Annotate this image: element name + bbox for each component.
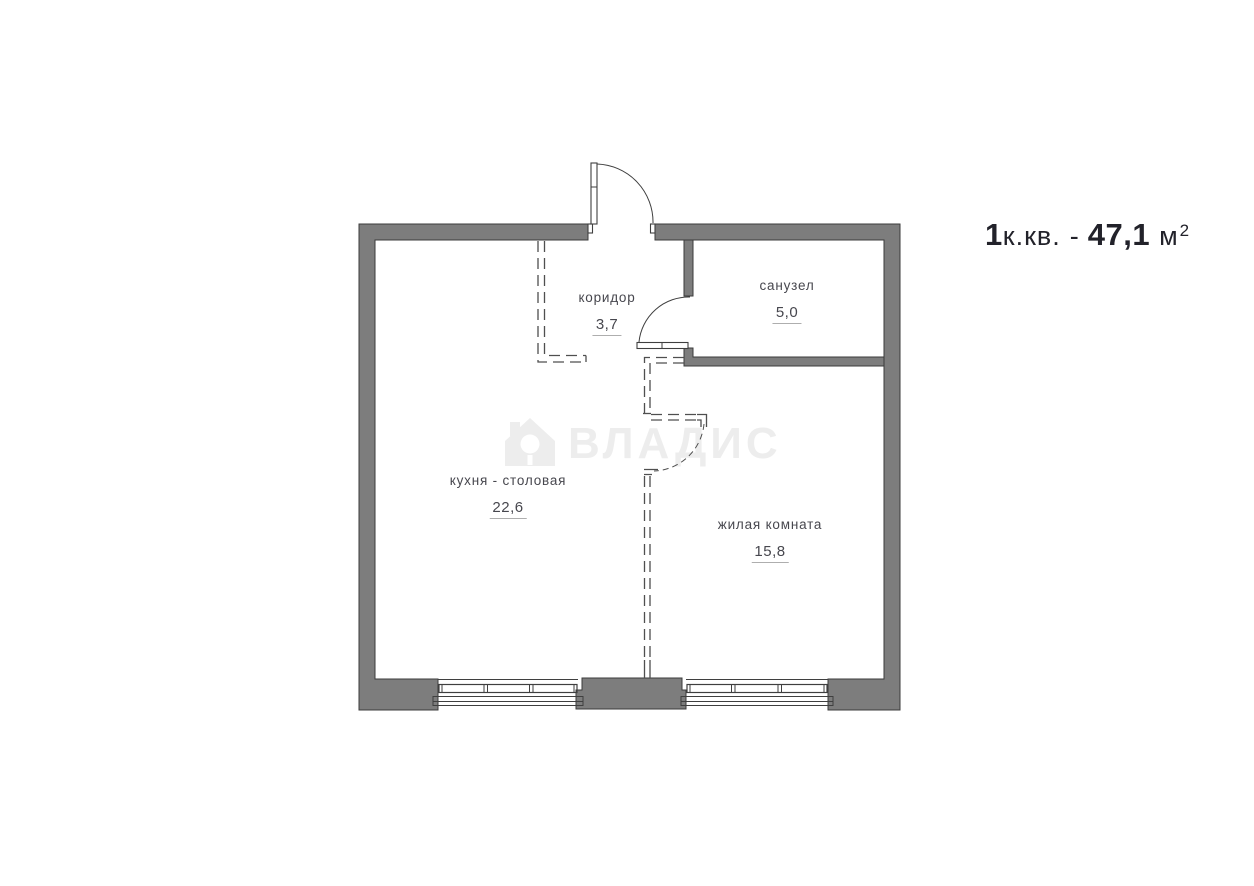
entrance-door-swing-arc bbox=[597, 164, 653, 223]
room-area: 5,0 bbox=[773, 304, 801, 324]
area-value: 47,1 bbox=[1088, 217, 1150, 252]
room-label-corridor: коридор 3,7 bbox=[578, 290, 635, 336]
living-room-door-swing-arc bbox=[654, 424, 704, 471]
living-room-partition bbox=[643, 358, 707, 679]
room-name: кухня - столовая bbox=[450, 473, 567, 488]
title-dash: - bbox=[1070, 221, 1079, 251]
room-area: 22,6 bbox=[489, 499, 526, 519]
area-unit-exponent: 2 bbox=[1180, 221, 1189, 240]
bathroom-wall-left bbox=[684, 240, 693, 296]
bathroom-wall-bottom bbox=[684, 348, 884, 366]
rooms-count: 1 bbox=[985, 217, 1003, 252]
living-room-window bbox=[681, 680, 833, 706]
apartment-type: к.кв. bbox=[1003, 221, 1061, 251]
room-name: санузел bbox=[759, 278, 814, 293]
room-label-bathroom: санузел 5,0 bbox=[759, 278, 814, 324]
room-label-kitchen: кухня - столовая 22,6 bbox=[450, 473, 567, 519]
room-label-living: жилая комната 15,8 bbox=[718, 517, 822, 563]
wall-bottom-pillar bbox=[576, 678, 686, 709]
room-name: жилая комната bbox=[718, 517, 822, 532]
floorplan-canvas: ВЛАДИС bbox=[0, 0, 1254, 886]
room-name: коридор bbox=[578, 290, 635, 305]
wall-left-top bbox=[359, 224, 588, 710]
area-unit: м bbox=[1159, 221, 1179, 251]
bathroom-door bbox=[637, 297, 690, 349]
room-area: 15,8 bbox=[751, 543, 788, 563]
entrance-door-leaf bbox=[591, 163, 597, 224]
entrance-door bbox=[588, 163, 655, 233]
kitchen-window bbox=[433, 680, 583, 706]
plan-title: 1к.кв.-47,1м2 bbox=[985, 219, 1188, 250]
bathroom-door-swing-arc bbox=[639, 297, 690, 342]
room-area: 3,7 bbox=[593, 316, 621, 336]
floorplan-drawing bbox=[0, 0, 1254, 886]
